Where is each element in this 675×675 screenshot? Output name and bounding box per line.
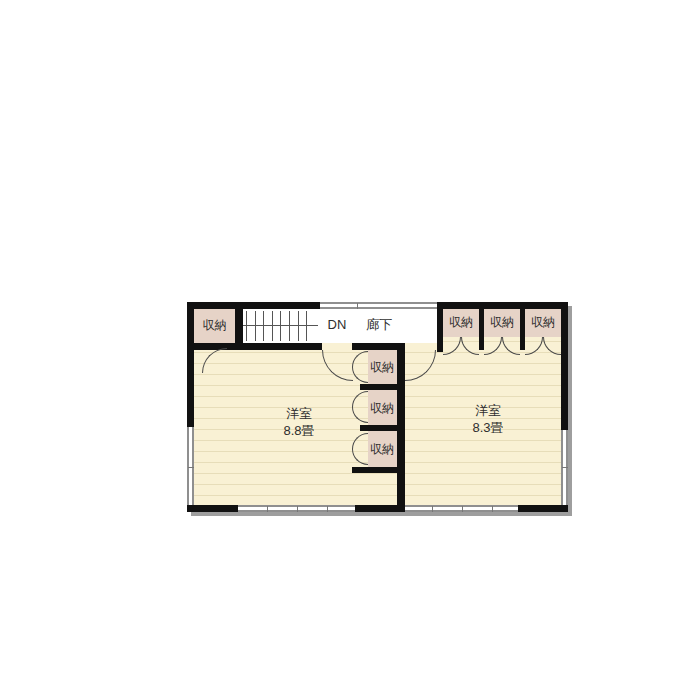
wall-middle-closet-stub-2 — [360, 425, 397, 431]
window-tick — [327, 506, 328, 512]
page: 収納 DN 廊下 収納 収納 収納 収納 収納 収納 洋室 8.8畳 洋室 8.… — [0, 0, 675, 675]
window-tick — [267, 506, 268, 512]
wall-corridor-bottom-left — [194, 343, 322, 350]
closet-label: 収納 — [194, 318, 235, 332]
window-tick — [432, 506, 433, 512]
closet-label: 収納 — [363, 360, 401, 374]
wall-stair-closet-divider — [235, 309, 243, 350]
window-bottom-right — [405, 505, 518, 512]
window-left — [187, 427, 194, 505]
room-1-size: 8.8畳 — [249, 422, 349, 439]
closet-label: 収納 — [443, 315, 479, 329]
room-2-name: 洋室 — [438, 402, 538, 419]
closet-label: 収納 — [525, 315, 561, 329]
floor-plan: 収納 DN 廊下 収納 収納 収納 収納 収納 収納 洋室 8.8畳 洋室 8.… — [187, 302, 568, 512]
closet-label: 収納 — [363, 401, 401, 415]
wall-middle-closet-stub-1 — [360, 384, 397, 390]
wall-middle-closet-bottom — [352, 467, 405, 473]
room-1-label: 洋室 8.8畳 — [249, 405, 349, 439]
wall-bottom-right — [518, 505, 568, 512]
closet-label: 収納 — [363, 442, 401, 456]
wall-top-right — [437, 302, 568, 309]
stairs-direction-tick — [306, 321, 307, 330]
window-tick — [297, 506, 298, 512]
wall-left-upper — [187, 302, 194, 427]
wall-bottom-left — [187, 505, 238, 512]
wall-top-left — [187, 302, 320, 309]
room-2-size: 8.3畳 — [438, 419, 538, 436]
window-bottom-left — [238, 505, 355, 512]
room-2-label: 洋室 8.3畳 — [438, 402, 538, 436]
window-tick — [188, 467, 194, 468]
wall-right-upper — [561, 302, 568, 430]
window-tick — [562, 467, 568, 468]
wall-bottom-center — [355, 505, 405, 512]
window-tick — [357, 303, 358, 309]
window-tick — [462, 506, 463, 512]
room-1-name: 洋室 — [249, 405, 349, 422]
window-right — [561, 430, 568, 505]
corridor-label: 廊下 — [359, 318, 399, 332]
closet-label: 収納 — [484, 315, 520, 329]
stairs-dn-label: DN — [321, 318, 353, 332]
stairs-treads — [246, 311, 309, 341]
window-top — [320, 302, 437, 309]
window-tick — [492, 506, 493, 512]
